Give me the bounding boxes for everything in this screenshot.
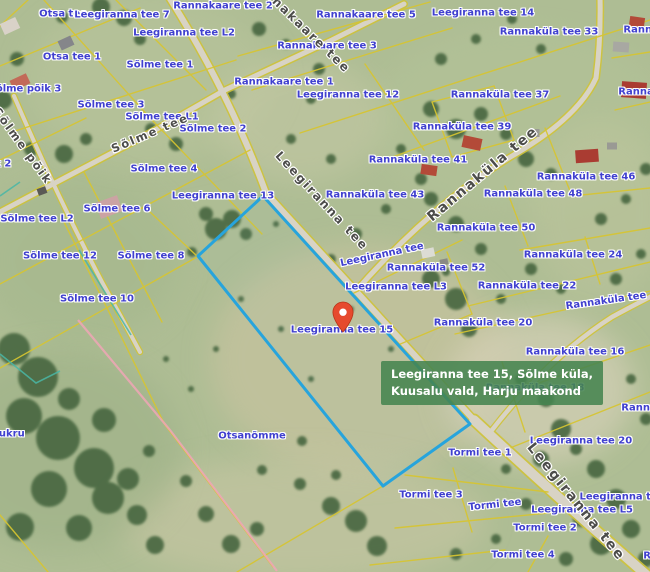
selection-tooltip: Leegiranna tee 15, Sõlme küla, Kuusalu v…: [381, 361, 603, 405]
map-viewport[interactable]: Otsa teeLeegiranna tee 7Rannakaare tee 2…: [0, 0, 650, 572]
marker-pin-icon: [333, 302, 353, 332]
tooltip-address-line1: Leegiranna tee 15, Sõlme küla,: [391, 366, 593, 383]
marker-hole: [339, 309, 346, 316]
tooltip-address-line2: Kuusalu vald, Harju maakond: [391, 383, 593, 400]
map-marker[interactable]: [331, 301, 355, 333]
map-canvas: [0, 0, 650, 572]
